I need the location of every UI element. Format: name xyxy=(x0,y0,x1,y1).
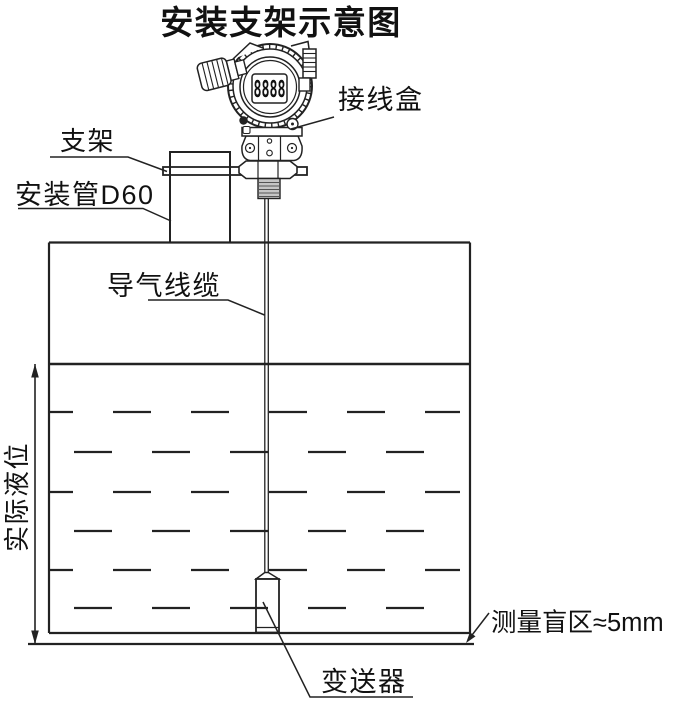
diagram-svg: 8888 xyxy=(0,0,700,708)
air-cable-lines xyxy=(265,199,269,574)
transmitter-label: 变送器 xyxy=(321,667,407,697)
air-cable-leader xyxy=(148,300,265,315)
probe-taper xyxy=(256,573,279,580)
hex-nut xyxy=(239,161,297,179)
air-cable-label: 导气线缆 xyxy=(107,271,221,301)
rim-small-port xyxy=(243,127,250,134)
probe-transmitter xyxy=(256,573,279,633)
threaded-stem xyxy=(258,179,280,199)
bracket-leader xyxy=(50,157,167,172)
lcd-digits: 8888 xyxy=(254,77,286,103)
mounting-pipe-outline xyxy=(170,152,230,243)
dimension-arrowhead-top xyxy=(31,364,39,378)
yoke-bolt-right-dot xyxy=(291,147,293,149)
rim-screw-dot xyxy=(291,123,294,126)
tank-outline xyxy=(28,243,474,645)
terminal-hinge xyxy=(299,78,310,91)
yoke-bolt-left-dot xyxy=(249,147,251,149)
installation-diagram: 8888 xyxy=(0,0,700,708)
rim-plug-dot xyxy=(239,116,247,124)
bracket-label: 支架 xyxy=(60,126,115,156)
mounting-pipe-leader xyxy=(18,209,171,222)
junction-box-label: 接线盒 xyxy=(338,85,424,115)
actual-level-label: 实际液位 xyxy=(2,442,32,552)
diagram-title: 安装支架示意图 xyxy=(160,4,402,41)
mounting-pipe-label: 安装管D60 xyxy=(15,180,155,210)
liquid-dashes xyxy=(49,412,460,608)
dimension-arrowhead-bottom xyxy=(31,631,39,645)
level-dimension xyxy=(31,364,39,644)
blind-zone-label: 测量盲区≈5mm xyxy=(491,609,664,637)
gland-rib-body xyxy=(196,57,232,91)
probe-body xyxy=(256,579,279,633)
